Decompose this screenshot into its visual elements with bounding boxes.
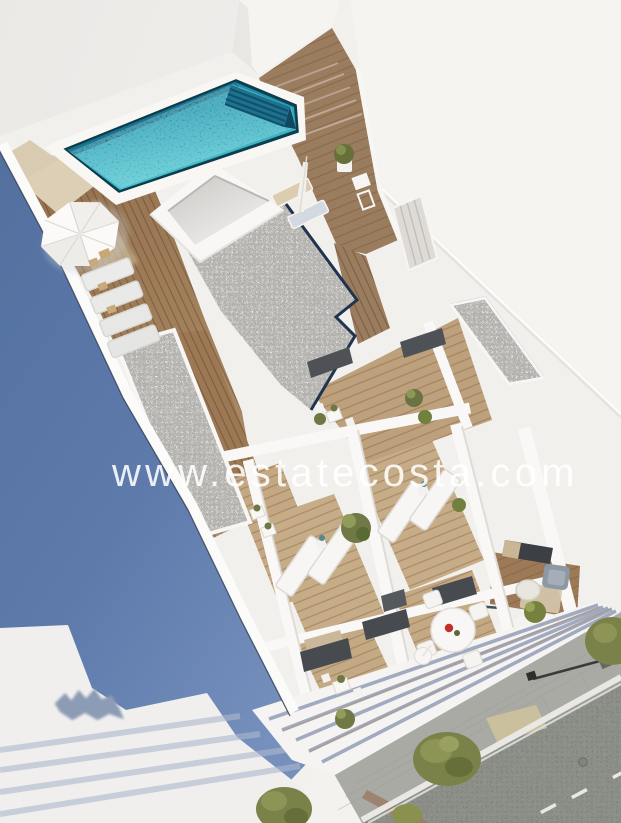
svg-text:www.estatecosta.com: www.estatecosta.com [111,451,579,495]
